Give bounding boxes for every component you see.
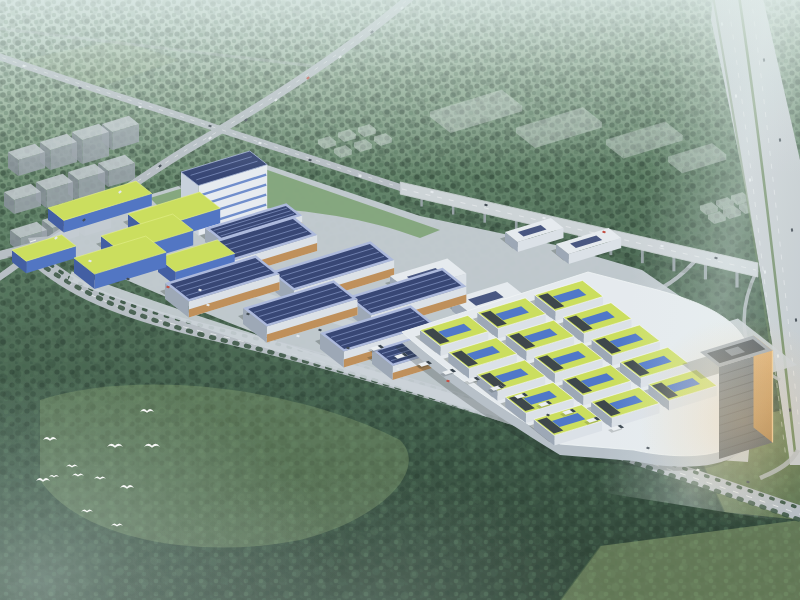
bird — [107, 444, 123, 448]
bird — [144, 444, 160, 448]
bird-flock — [36, 409, 160, 527]
bird — [111, 524, 123, 527]
bird — [66, 465, 78, 468]
bird — [36, 478, 50, 482]
bird — [81, 510, 93, 513]
bird — [43, 437, 57, 441]
bird — [72, 474, 84, 477]
bird-flock-layer — [0, 0, 800, 600]
bird — [49, 475, 59, 478]
bird — [120, 485, 134, 489]
bird — [140, 409, 154, 413]
bird — [94, 477, 106, 480]
aerial-campus-rendering — [0, 0, 800, 600]
